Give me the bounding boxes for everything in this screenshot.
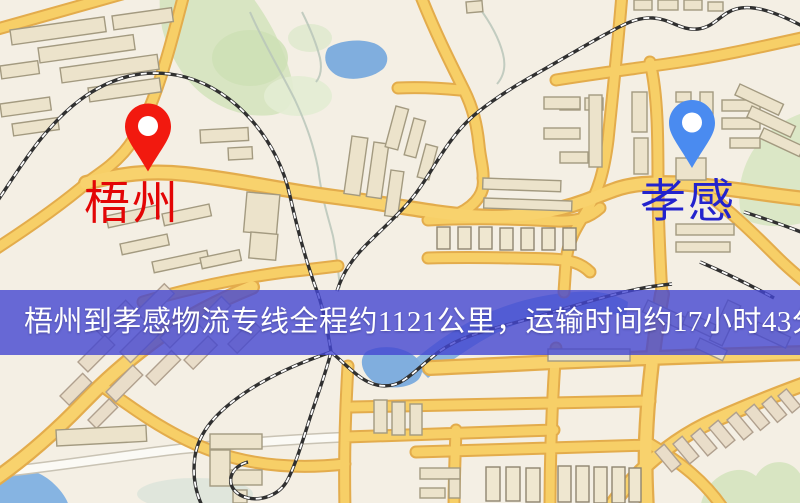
map-screenshot: 梧州 孝感 梧州到孝感物流专线全程约1121公里，运输时间约17小时43分钟.: [0, 0, 800, 503]
route-info-banner: 梧州到孝感物流专线全程约1121公里，运输时间约17小时43分钟.: [0, 290, 800, 355]
destination-label: 孝感: [640, 179, 736, 225]
pin-hole: [138, 116, 158, 136]
pin-hole: [682, 113, 702, 133]
origin-pin-icon: [124, 102, 172, 173]
pin-shape: [125, 104, 171, 172]
destination-pin-icon: [666, 99, 718, 169]
route-info-text: 梧州到孝感物流专线全程约1121公里，运输时间约17小时43分钟.: [24, 306, 800, 338]
map-background: [0, 0, 800, 503]
origin-label: 梧州: [84, 181, 180, 227]
pin-shape: [669, 100, 715, 168]
buildings: [0, 0, 800, 503]
